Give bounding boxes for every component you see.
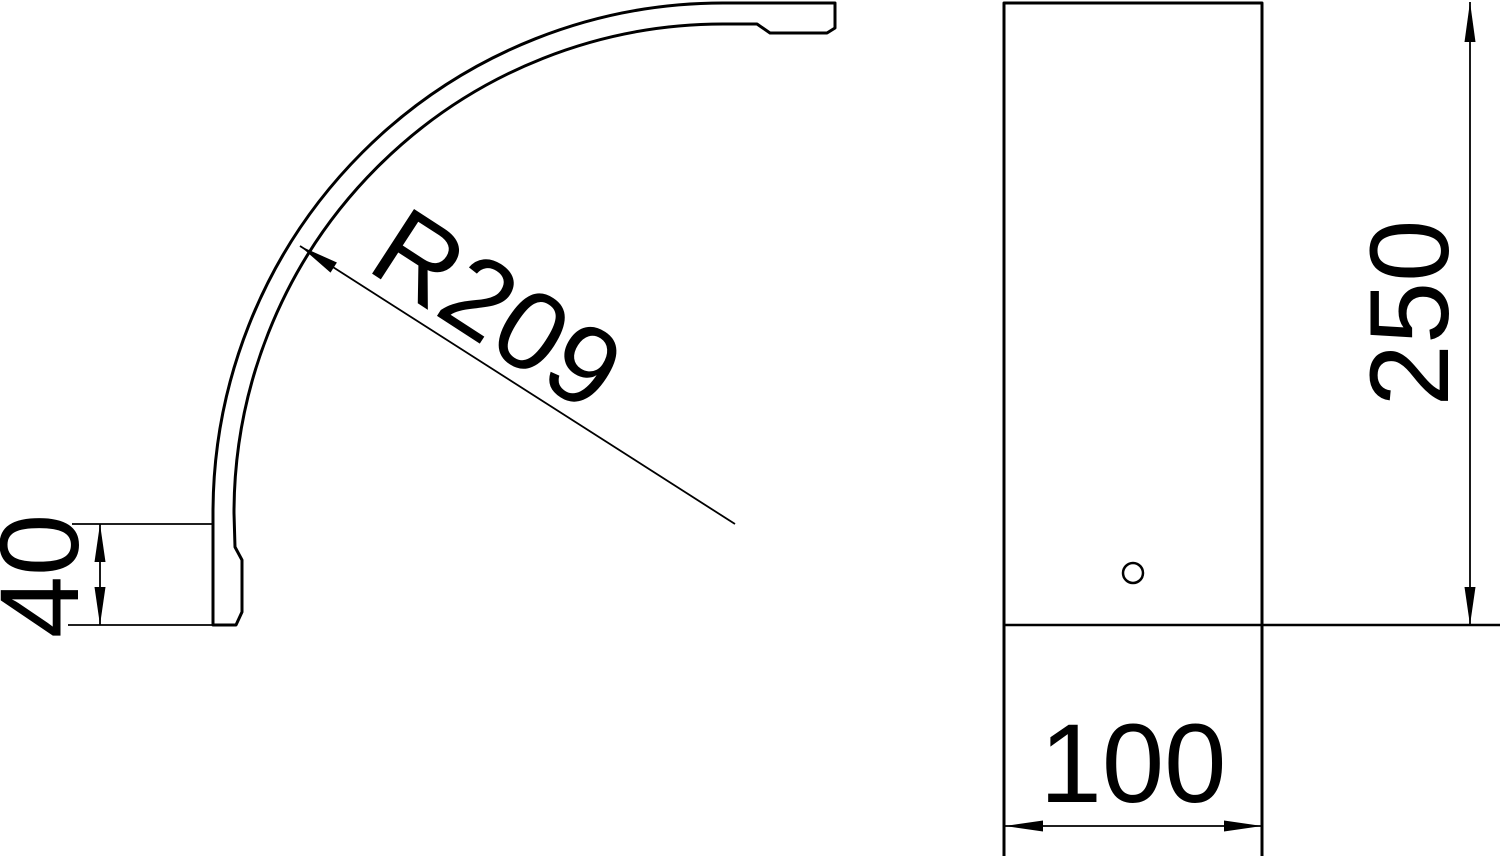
length-arrowhead-down bbox=[1465, 587, 1476, 625]
radius-dimension: R209 bbox=[300, 184, 735, 524]
fixing-hole bbox=[1123, 563, 1143, 583]
radius-dimension-label: R209 bbox=[351, 184, 644, 435]
width-arrowhead-right bbox=[1224, 821, 1262, 832]
drawing-canvas: R209 40 250 100 bbox=[0, 0, 1500, 856]
height-dimension-label: 40 bbox=[0, 514, 102, 639]
technical-drawing: R209 40 250 100 bbox=[0, 0, 1500, 856]
width-arrowhead-left bbox=[1005, 821, 1043, 832]
length-dimension: 250 bbox=[1347, 2, 1476, 625]
length-arrowhead-up bbox=[1465, 2, 1476, 42]
width-dimension: 100 bbox=[1005, 701, 1262, 832]
length-dimension-label: 250 bbox=[1347, 220, 1472, 407]
width-dimension-label: 100 bbox=[1040, 701, 1227, 826]
height-dimension: 40 bbox=[0, 514, 213, 639]
